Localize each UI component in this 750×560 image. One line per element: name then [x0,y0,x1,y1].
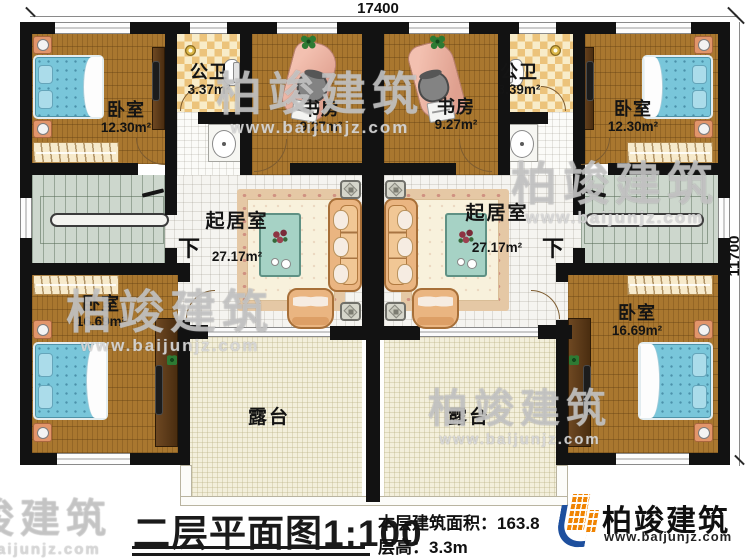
wall-segment [20,22,32,465]
sofa [384,198,418,292]
floor-height-info: 层高：3.3m [378,533,468,558]
window [519,22,556,34]
bed-sheet-fold [640,344,660,418]
logo-icon [556,492,600,550]
stairs-handrail [50,213,169,227]
wall-segment [165,175,177,215]
room-label-living-left: 起居室 27.17m² [197,211,277,265]
title-underline [132,553,370,556]
room-label-terrace-right: 露台 [433,407,505,428]
room-label-study-right: 书房 9.27m² [417,97,495,133]
room-label-bedroom-bottom-right: 卧室 16.69m² [592,303,682,339]
room-label-terrace-left: 露台 [233,407,305,428]
room-label-living-right: 起居室 27.17m² [457,203,537,256]
nightstand [33,423,52,442]
armchair [287,288,334,329]
plant-icon [167,355,177,365]
wall-segment [178,263,190,282]
floorplan-canvas: 17400 11700 [0,0,750,559]
end-table [340,302,361,321]
window [616,453,689,465]
tv-panel [156,366,162,414]
stairs-handrail [585,213,704,227]
wall-segment [362,22,384,340]
tv-panel [153,62,159,100]
logo-url: www.baijunjz.com [604,529,732,544]
building-area-info: 本层建筑面积：163.8 [378,509,540,534]
window [57,453,130,465]
title-underline [132,546,365,549]
wall-segment [718,22,730,465]
wall-segment [290,163,362,175]
wall-segment [366,340,380,502]
plant-icon [569,355,579,365]
wardrobe [627,275,713,295]
wall-segment [330,326,420,340]
tv-panel [587,62,593,100]
plant-icon [300,33,317,50]
tv-panel [584,366,590,414]
pillows [38,62,54,112]
window [20,198,32,238]
wall-segment [556,320,568,465]
nightstand [694,320,713,339]
window [55,22,130,34]
window [718,198,730,238]
wall-segment [165,34,177,175]
armchair [412,288,459,329]
wardrobe [33,275,119,295]
room-label-study-left: 书房 9.27m² [282,99,360,135]
wardrobe [627,142,713,163]
wall-segment [498,34,510,175]
wall-segment [573,175,585,215]
window [616,22,691,34]
wall-segment [384,163,456,175]
wall-segment [198,112,240,124]
stairs-down-label: 下 [178,231,206,263]
wall-segment [538,325,572,339]
nightstand [694,36,713,54]
window [277,22,337,34]
nightstand [33,36,52,54]
wall-segment [240,34,252,175]
end-table [340,180,361,199]
sink [212,130,236,158]
wall-segment [506,112,548,124]
company-logo: 柏竣建筑 www.baijunjz.com [556,492,750,554]
bed-sheet-fold [86,344,106,418]
window [409,22,469,34]
window [190,22,227,34]
nightstand [694,120,713,138]
wall-segment [573,248,585,275]
pillows [692,349,708,413]
bed [638,342,713,420]
wardrobe [33,142,119,163]
room-label-bath-right: 公卫 3.39m² [488,62,550,98]
ceiling-light [185,45,196,56]
sink [510,130,534,158]
wall-segment [608,163,718,175]
room-label-bedroom-top-left: 卧室 12.30m² [86,100,166,136]
end-table [385,180,406,199]
room-label-bedroom-top-right: 卧室 12.30m² [593,99,673,135]
wall-segment [178,325,208,339]
ceiling-light [550,45,561,56]
wall-segment [32,163,138,175]
nightstand [33,320,52,339]
wall-segment [165,248,177,275]
nightstand [694,423,713,442]
room-label-bedroom-bottom-left: 卧室 16.69m² [56,294,146,330]
wall-segment [556,263,568,282]
pillows [38,349,54,413]
watermark: 柏竣建筑 www.baijunjz.com [0,498,140,560]
nightstand [33,120,52,138]
wall-segment [178,320,190,465]
bed [33,342,108,420]
pillows [692,62,708,112]
room-label-bath-left: 公卫 3.37m² [178,62,240,98]
plant-icon [429,33,446,50]
stairs-down-label: 下 [542,231,570,263]
end-table [385,302,406,321]
sofa [328,198,362,292]
dimension-top-label: 17400 [348,0,408,16]
